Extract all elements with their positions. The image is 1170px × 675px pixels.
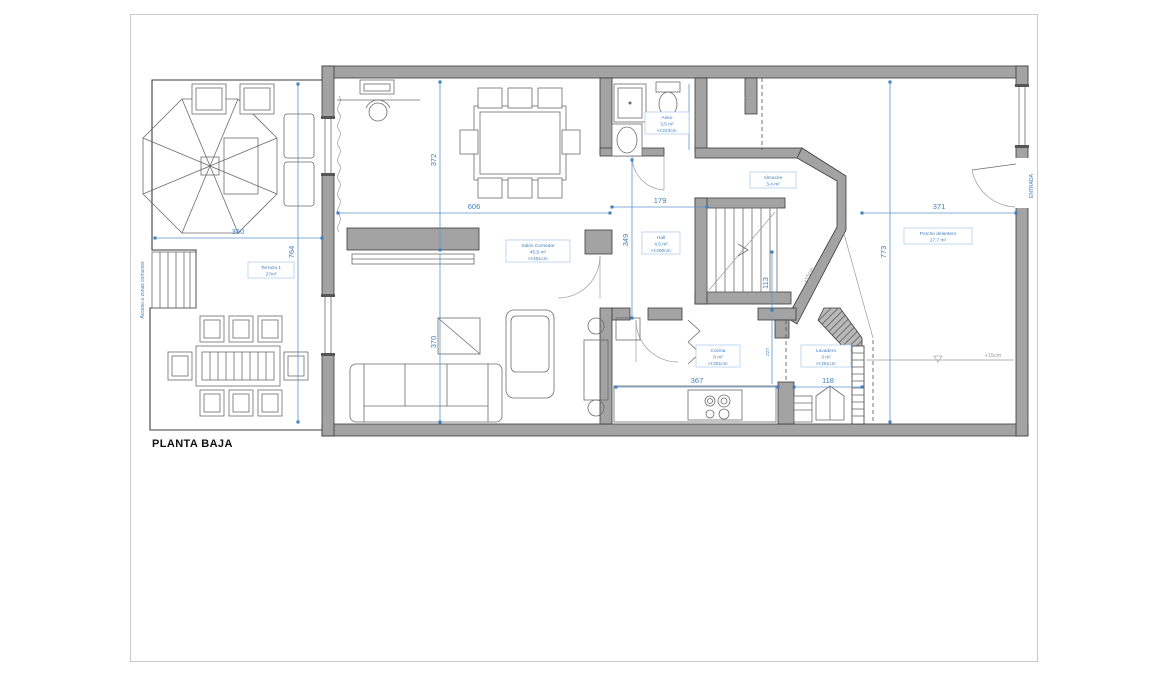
svg-text:Hall: Hall: [657, 235, 665, 241]
svg-text:Almacén: Almacén: [764, 175, 783, 181]
svg-text:Aseo: Aseo: [662, 115, 673, 121]
cooktop: [688, 390, 742, 420]
plan-title: PLANTA BAJA: [152, 438, 233, 450]
window-left-top: [321, 116, 335, 176]
svg-text:H:251cm: H:251cm: [708, 361, 727, 367]
svg-text:8 m²: 8 m²: [713, 355, 723, 361]
dim-hall-width: 179: [654, 196, 667, 205]
chaise-lounge: [506, 310, 554, 398]
dim-cocina-width: 367: [691, 376, 704, 385]
label-almacen: Almacén 3,4 m²: [750, 172, 796, 188]
svg-text:Cocina: Cocina: [711, 348, 726, 354]
floor-plan-canvas: +15cm +15cm +15cm 350 764 606 372 370 17…: [0, 0, 1170, 675]
label-aseo: Aseo 3,5 m² H:223cm: [645, 112, 689, 134]
lounge-chair: [192, 84, 226, 114]
svg-text:Terraza 1: Terraza 1: [261, 265, 281, 271]
dim-porche-height: 773: [879, 246, 888, 259]
dim-salon-depth-bottom: 370: [429, 336, 438, 349]
dim-hall-depth: 349: [621, 234, 630, 247]
svg-text:Porche delantero: Porche delantero: [920, 231, 957, 237]
dim-salon-width: 606: [468, 202, 481, 211]
media-wall: [347, 228, 479, 264]
dim-porche-width: 371: [933, 202, 946, 211]
lounge-chair: [240, 84, 274, 114]
dim-pasillo: 113: [761, 277, 770, 289]
label-salon: Salón Comedor 45,5 m² H:251cm: [506, 240, 570, 262]
entrada-annotation: ENTRADA: [1029, 173, 1035, 198]
sink: [612, 124, 642, 156]
dim-lavadero-width: 118: [822, 376, 834, 385]
dim-salon-depth-top: 372: [429, 154, 438, 167]
svg-text:3 m²: 3 m²: [821, 355, 831, 361]
svg-text:3,4 m²: 3,4 m²: [766, 182, 780, 188]
side-steps: [852, 346, 864, 424]
label-hall: Hall 4,5 m² H:200cm: [642, 232, 680, 254]
svg-text:45,5 m²: 45,5 m²: [530, 250, 547, 256]
label-terraza: Terraza 1 27m²: [248, 262, 294, 278]
label-lavadero: Lavadero 3 m² H:251cm: [801, 345, 851, 367]
svg-text:4,5 m²: 4,5 m²: [654, 242, 668, 248]
coffee-table: [438, 318, 480, 354]
acceso-annotation: Acceso a zonas comunes: [140, 261, 146, 318]
svg-text:H:223cm: H:223cm: [657, 128, 676, 134]
svg-text:H:200cm: H:200cm: [651, 248, 670, 254]
svg-text:Lavadero: Lavadero: [816, 348, 836, 354]
sofa: [350, 364, 502, 422]
svg-text:27,7 m²: 27,7 m²: [930, 238, 947, 244]
label-porche: Porche delantero 27,7 m²: [904, 228, 972, 244]
label-cocina: Cocina 8 m² H:251cm: [696, 345, 740, 367]
dim-cocina-depth: 227: [765, 348, 771, 356]
dining-table: [460, 88, 580, 198]
side-sofa: [284, 162, 314, 206]
level-annotation: +15cm: [985, 353, 1002, 359]
svg-text:Salón Comedor: Salón Comedor: [521, 243, 555, 249]
window-right: [1015, 84, 1029, 148]
washer: [794, 396, 812, 422]
window-left-bottom: [321, 294, 335, 356]
svg-text:27m²: 27m²: [266, 272, 277, 278]
dim-terraza-height: 764: [287, 246, 296, 259]
side-sofa: [284, 114, 314, 158]
svg-text:H:251cm: H:251cm: [528, 256, 547, 262]
svg-text:H:251cm: H:251cm: [816, 361, 835, 367]
svg-text:3,5 m²: 3,5 m²: [660, 122, 674, 128]
dim-terraza-width: 350: [232, 227, 245, 236]
shower: [614, 84, 646, 122]
